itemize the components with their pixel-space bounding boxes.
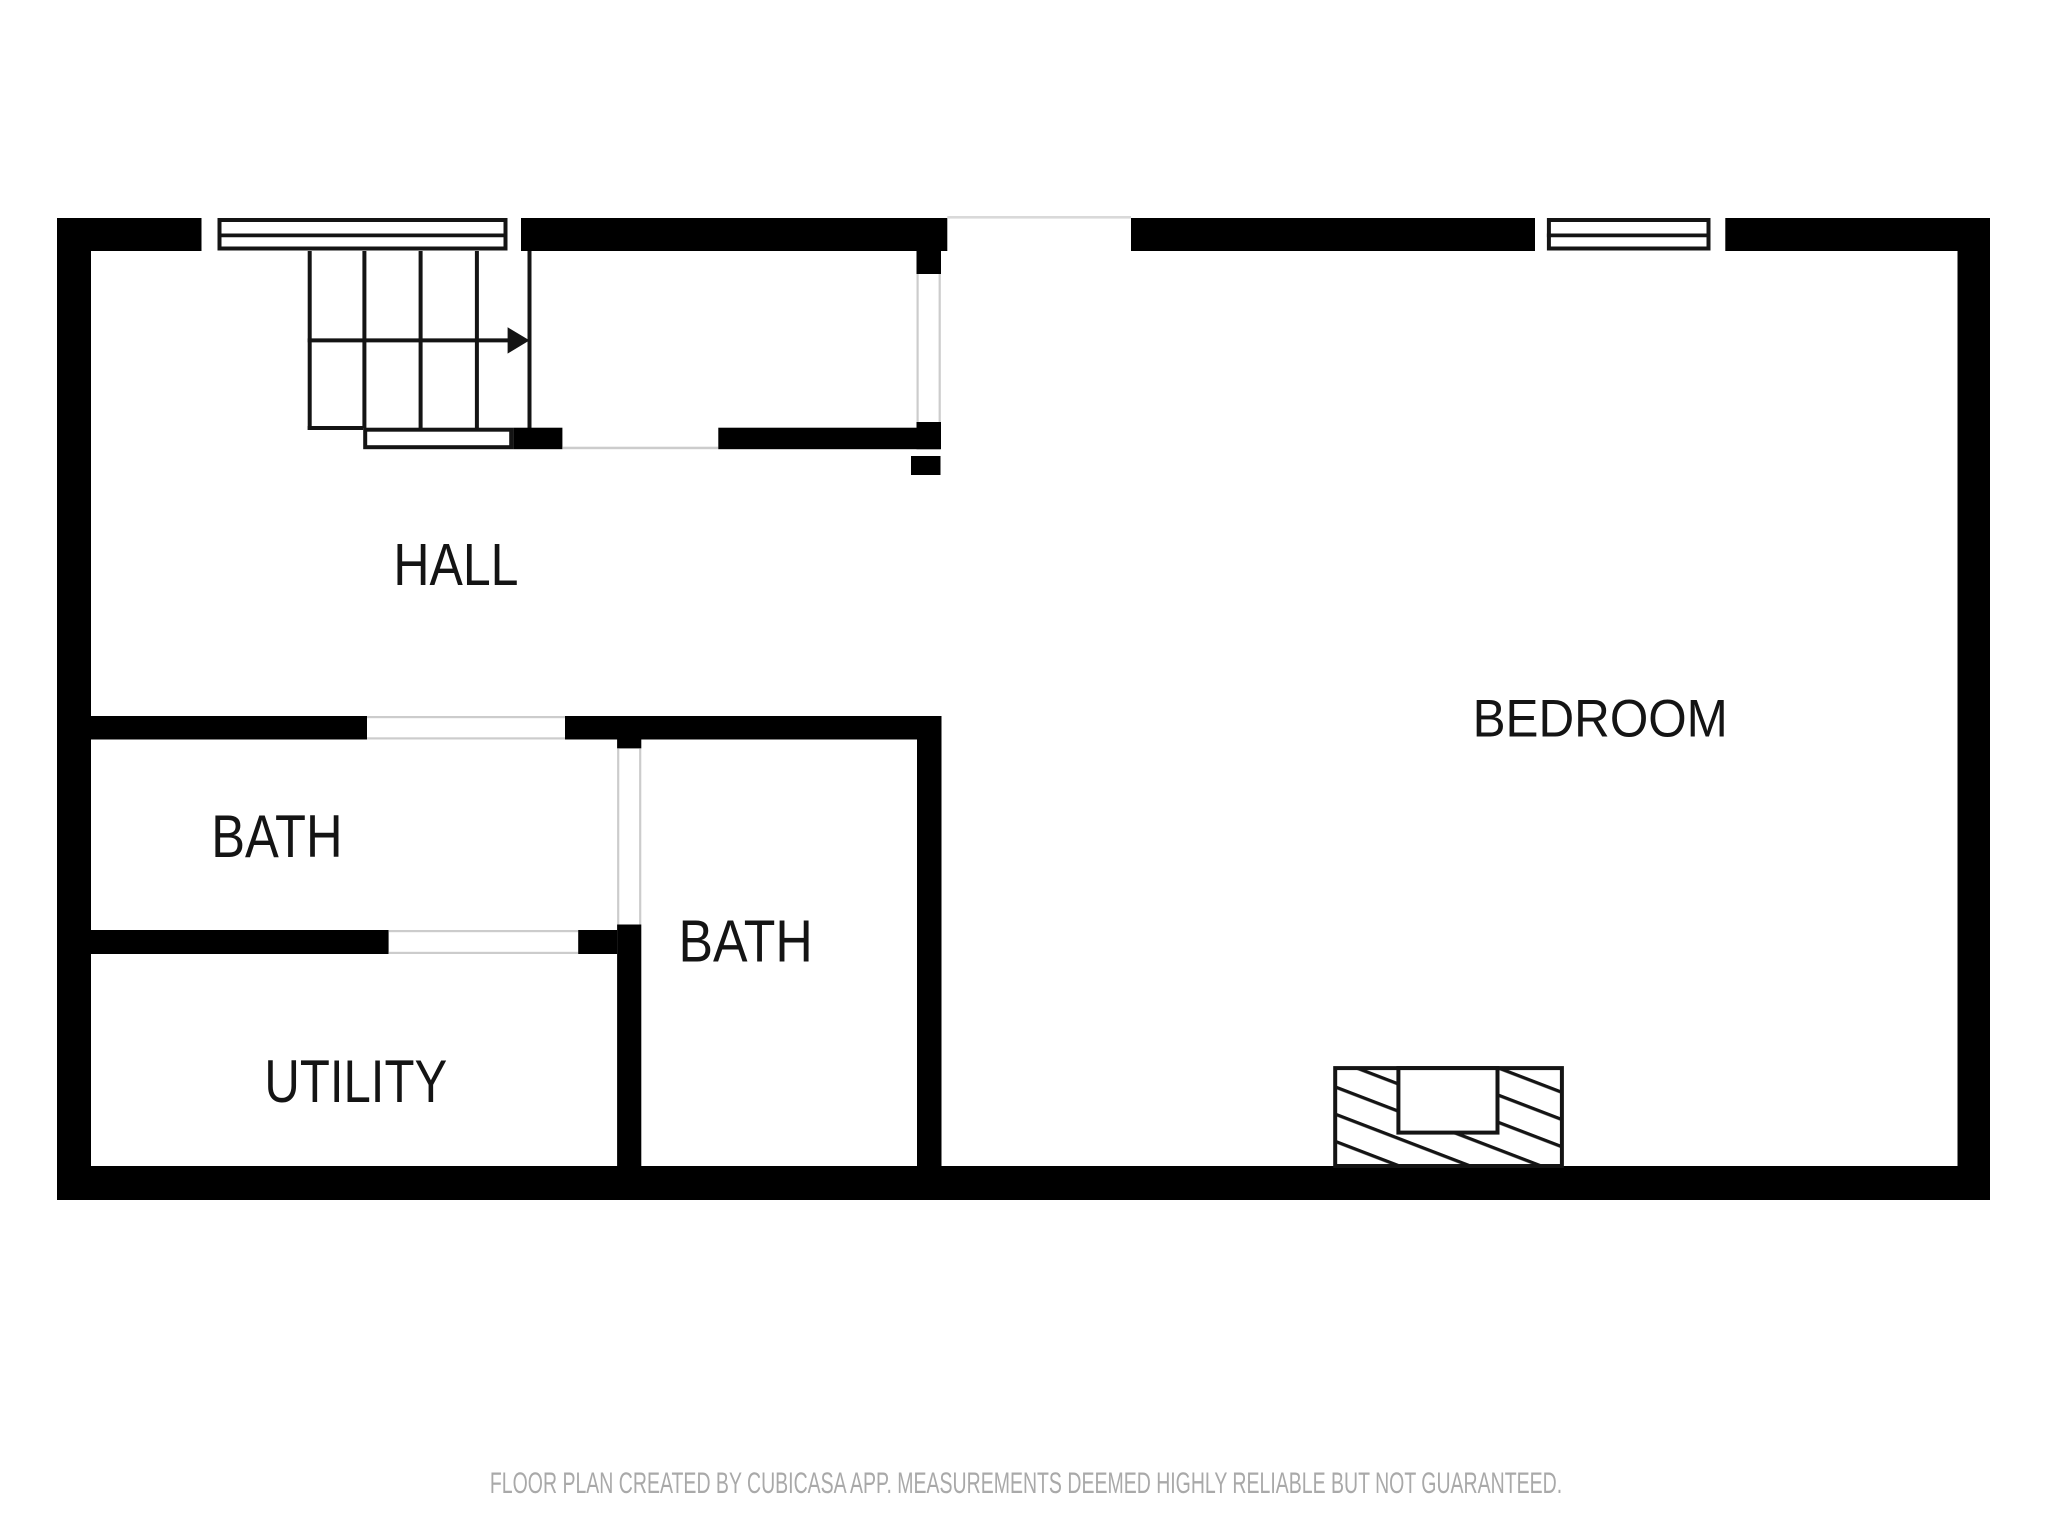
svg-text:BEDROOM: BEDROOM xyxy=(1473,689,1728,748)
svg-text:FLOOR PLAN CREATED BY CUBICASA: FLOOR PLAN CREATED BY CUBICASA APP. MEAS… xyxy=(490,1467,1562,1500)
svg-text:BATH: BATH xyxy=(211,802,342,870)
svg-text:BATH: BATH xyxy=(678,908,812,974)
svg-text:HALL: HALL xyxy=(393,531,518,598)
svg-text:UTILITY: UTILITY xyxy=(264,1047,447,1115)
